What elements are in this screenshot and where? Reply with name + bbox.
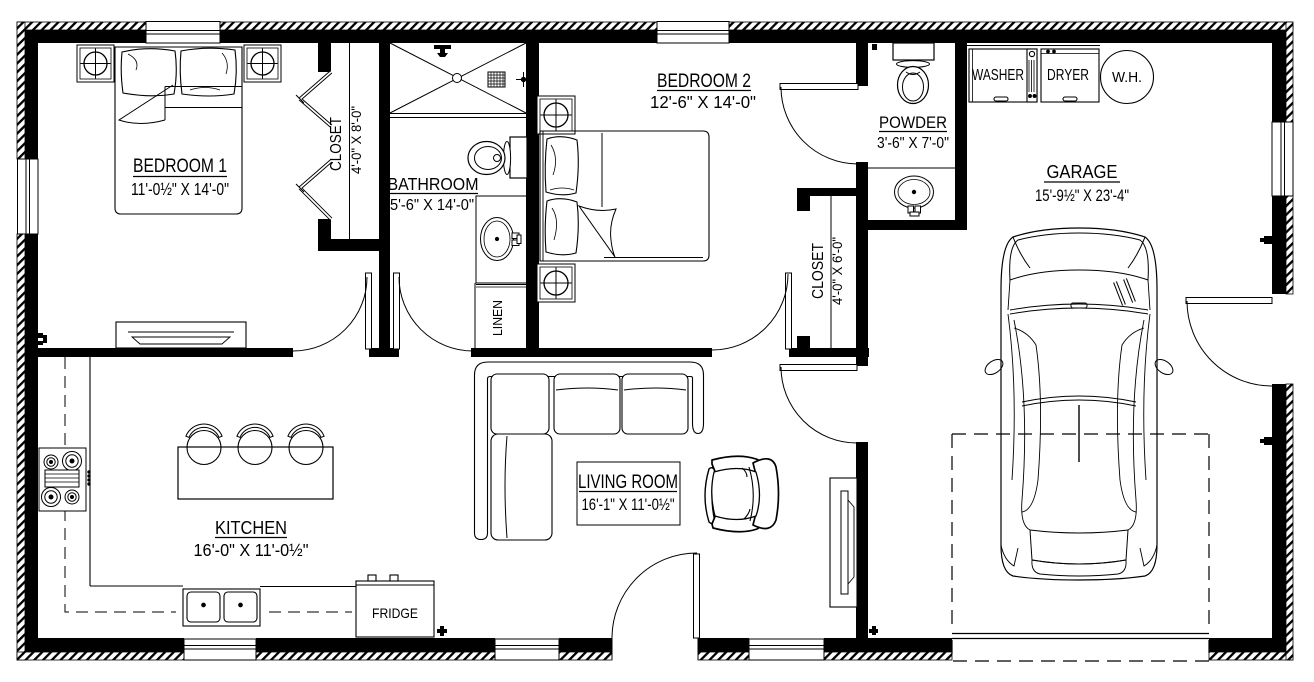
svg-text:15'-9½" X 23'-4": 15'-9½" X 23'-4"	[1035, 187, 1129, 205]
svg-text:12'-6" X 14'-0": 12'-6" X 14'-0"	[650, 92, 756, 112]
svg-text:16'-0" X 11'-0½": 16'-0" X 11'-0½"	[194, 540, 309, 560]
svg-text:16'-1" X 11'-0½": 16'-1" X 11'-0½"	[582, 495, 675, 514]
svg-text:DRYER: DRYER	[1047, 67, 1089, 84]
svg-text:LINEN: LINEN	[491, 300, 505, 336]
svg-text:5'-6" X 14'-0": 5'-6" X 14'-0"	[390, 197, 474, 214]
svg-text:BEDROOM 2: BEDROOM 2	[657, 71, 751, 92]
svg-text:LIVING ROOM: LIVING ROOM	[578, 472, 678, 493]
svg-text:BEDROOM 1: BEDROOM 1	[133, 156, 227, 177]
svg-text:11'-0½" X 14'-0": 11'-0½" X 14'-0"	[131, 179, 229, 199]
svg-text:KITCHEN: KITCHEN	[215, 517, 287, 538]
svg-text:WASHER: WASHER	[972, 67, 1024, 84]
svg-text:4'-0" X 8'-0": 4'-0" X 8'-0"	[349, 106, 364, 174]
svg-text:4'-0" X 6'-0": 4'-0" X 6'-0"	[830, 237, 845, 305]
svg-text:3'-6" X 7'-0": 3'-6" X 7'-0"	[877, 135, 949, 152]
svg-text:CLOSET: CLOSET	[810, 243, 827, 299]
svg-text:FRIDGE: FRIDGE	[372, 605, 418, 621]
svg-text:W.H.: W.H.	[1112, 70, 1142, 86]
svg-text:CLOSET: CLOSET	[328, 117, 345, 171]
svg-text:GARAGE: GARAGE	[1047, 161, 1118, 182]
svg-text:BATHROOM: BATHROOM	[388, 174, 479, 194]
svg-text:POWDER: POWDER	[879, 114, 947, 132]
